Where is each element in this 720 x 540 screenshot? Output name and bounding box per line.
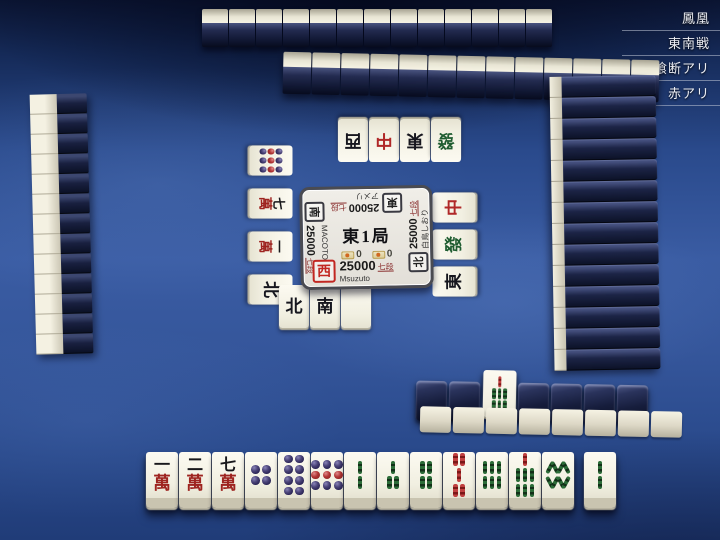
wall-top-far	[202, 9, 552, 47]
round-label: 東1局	[303, 221, 430, 248]
discards-right-player: 中發東	[431, 189, 477, 300]
wall-tile-back	[35, 313, 93, 334]
tile-E: 東	[433, 267, 476, 297]
match-type-label: 東南戦	[622, 31, 720, 56]
discard-slot: 一萬	[248, 225, 294, 268]
center-info-panel: 東 25000七段 アメリ 南 MACOTO 25000七段 北 25000七段…	[299, 185, 434, 290]
lobby-label: 鳳凰	[622, 6, 720, 31]
mahjong-table: 鳳凰 東南戦 喰断アリ 赤アリ 西中東發 七萬一萬北 中發東 北南 東 2500…	[0, 0, 720, 540]
wall-tile-back	[35, 293, 93, 314]
wall-tile-back	[391, 9, 417, 47]
wall-tile-back	[370, 54, 399, 97]
discard-slot: 七萬	[248, 182, 294, 225]
wall-tile-back	[364, 9, 390, 47]
hand-tiles[interactable]: 一萬二萬七萬	[146, 452, 574, 508]
wall-tile-back	[472, 9, 498, 47]
tile-9p	[250, 146, 293, 176]
dead-wall-tile-back	[486, 408, 518, 435]
tile-F: 發	[433, 230, 476, 260]
wall-tile-back	[31, 153, 89, 174]
wall-tile-back	[499, 9, 525, 47]
wall-tile-back	[202, 9, 228, 47]
tile-8p[interactable]	[278, 452, 310, 508]
wall-tile-back	[31, 133, 89, 154]
tile-C: 中	[433, 193, 476, 223]
player-top-rank: 七段	[330, 203, 346, 212]
tile-2s[interactable]	[584, 452, 616, 508]
dead-wall-tile-back	[618, 410, 650, 437]
wall-tile-back	[337, 9, 363, 47]
tile-haku	[341, 285, 371, 328]
dead-wall-lower	[420, 406, 684, 438]
tile-7s[interactable]	[509, 452, 541, 508]
player-top-name: アメリ	[330, 191, 379, 200]
tile-4p[interactable]	[245, 452, 277, 508]
wall-tile-back	[526, 9, 552, 47]
tile-6s[interactable]	[476, 452, 508, 508]
player-top-info: 東 25000七段 アメリ	[330, 190, 402, 216]
tile-0s[interactable]	[443, 452, 475, 508]
tile-4s[interactable]	[410, 452, 442, 508]
round-indicator: 東1局 0 0	[303, 221, 431, 261]
wall-tile-back	[550, 117, 656, 140]
wall-tile-back	[552, 243, 658, 266]
wall-tile-back	[34, 253, 92, 274]
discard-slot: 東	[431, 263, 477, 300]
dead-wall-tile-back	[519, 408, 551, 435]
tile-N: 北	[279, 285, 309, 328]
wall-tile-back	[553, 285, 659, 308]
wall-tile-back	[30, 113, 88, 134]
tile-W: 西	[338, 119, 368, 162]
wall-tile-back	[445, 9, 471, 47]
player-bottom-name: Msuzuto	[340, 274, 394, 283]
tile-3s[interactable]	[377, 452, 409, 508]
player-hand[interactable]: 一萬二萬七萬	[146, 452, 616, 508]
player-bottom-info: 西 25000七段 Msuzuto	[312, 257, 394, 284]
wall-tile-back	[551, 180, 657, 203]
player-left-wind: 南	[304, 202, 324, 222]
tile-8s[interactable]	[542, 452, 574, 508]
wall-tile-back	[36, 333, 94, 354]
wall-tile-back	[418, 9, 444, 47]
tile-7m[interactable]: 七萬	[212, 452, 244, 508]
wall-tile-back	[33, 213, 91, 234]
tile-9p[interactable]	[311, 452, 343, 508]
wall-left	[30, 93, 94, 354]
drawn-tile[interactable]	[575, 452, 616, 508]
wall-tile-back	[32, 193, 90, 214]
wall-tile-back	[486, 56, 515, 99]
tile-F: 發	[431, 119, 461, 162]
tile-C: 中	[369, 119, 399, 162]
wall-tile-back	[552, 201, 658, 224]
wall-tile-back	[551, 159, 657, 182]
wall-tile-back	[552, 222, 658, 245]
tile-S: 南	[310, 285, 340, 328]
wall-tile-back	[310, 9, 336, 47]
dead-wall-tile-back	[420, 406, 452, 433]
wall-tile-back	[283, 52, 312, 95]
player-right-rank: 七段	[410, 200, 419, 216]
wall-tile-back	[553, 264, 659, 287]
wall-tile-back	[550, 96, 656, 119]
wall-tile-back	[515, 57, 544, 100]
discard-slot	[248, 139, 294, 182]
player-bottom-wind: 西	[312, 259, 335, 282]
discard-slot: 發	[431, 226, 477, 263]
wall-tile-back	[256, 9, 282, 47]
wall-tile-back	[30, 93, 88, 114]
dead-wall-tile-back	[552, 409, 584, 436]
discard-slot: 中	[431, 189, 477, 226]
wall-tile-back	[457, 56, 486, 99]
wall-tile-back	[551, 138, 657, 161]
tile-7m: 七萬	[250, 189, 293, 219]
wall-tile-back	[554, 348, 660, 371]
wall-tile-back	[549, 75, 655, 98]
dead-wall-tile-back	[585, 410, 617, 437]
wall-right	[549, 75, 660, 371]
tile-1m: 一萬	[250, 232, 293, 262]
tile-E: 東	[400, 119, 430, 162]
player-bottom-rank: 七段	[378, 262, 394, 271]
wall-tile-back	[34, 273, 92, 294]
tile-2m[interactable]: 二萬	[179, 452, 211, 508]
player-top-wind: 東	[382, 193, 402, 213]
wall-tile-back	[312, 52, 341, 95]
wall-tile-back	[33, 233, 91, 254]
discards-bottom-player: 北南	[279, 285, 371, 328]
player-bottom-score: 25000	[339, 258, 375, 274]
wall-tile-back	[554, 327, 660, 350]
wall-tile-back	[428, 55, 457, 98]
wall-tile-back	[283, 9, 309, 47]
dead-wall-tile-back	[651, 411, 683, 438]
tile-1m[interactable]: 一萬	[146, 452, 178, 508]
dead-wall-tile-back	[453, 407, 485, 434]
wall-tile-back	[32, 173, 90, 194]
wall-tile-back	[341, 53, 370, 96]
wall-tile-back	[553, 306, 659, 329]
wall-tile-back	[399, 54, 428, 97]
player-top-score: 25000	[348, 201, 379, 214]
discards-top-player: 西中東發	[338, 119, 461, 162]
wall-tile-back	[229, 9, 255, 47]
tile-2s[interactable]	[344, 452, 376, 508]
